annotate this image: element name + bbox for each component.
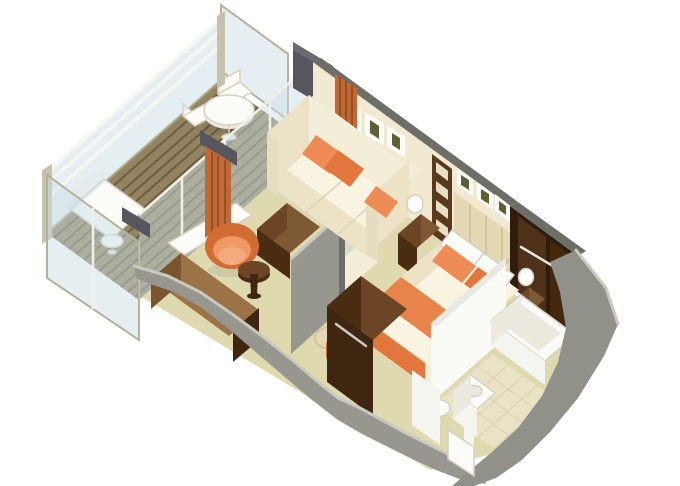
table-lamp bbox=[519, 269, 534, 286]
railing-post-right bbox=[217, 11, 225, 89]
suite-floor-plan bbox=[0, 0, 680, 486]
side-table-stem bbox=[250, 274, 258, 295]
floor-plan-stage bbox=[0, 0, 680, 486]
side-table-base bbox=[247, 293, 261, 299]
chair-cushion bbox=[218, 247, 246, 265]
armrest-left-front bbox=[267, 133, 278, 196]
table-lamp bbox=[407, 195, 423, 213]
